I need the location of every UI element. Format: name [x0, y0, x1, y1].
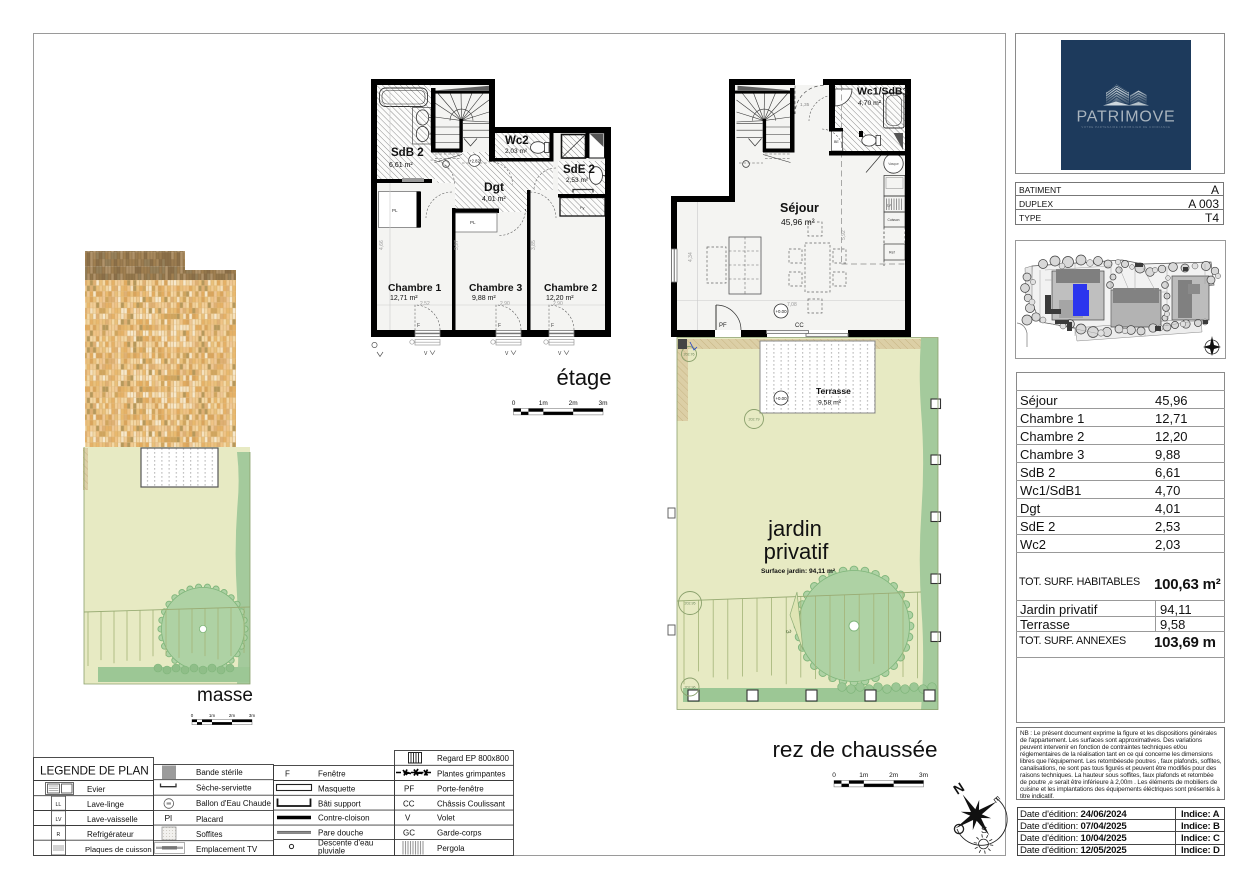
svg-text:Fy: Fy	[580, 205, 584, 210]
svg-text:Refrigérateur: Refrigérateur	[87, 830, 134, 839]
svg-text:2,53 m²: 2,53 m²	[566, 177, 589, 184]
svg-text:Pare douche: Pare douche	[318, 829, 364, 838]
svg-text:E: E	[991, 795, 1001, 805]
svg-text:Chambre 2: Chambre 2	[544, 283, 597, 294]
svg-text:2,90: 2,90	[500, 301, 510, 307]
svg-text:V: V	[505, 351, 509, 357]
svg-text:F: F	[417, 323, 420, 329]
svg-text:R: R	[57, 832, 61, 838]
svg-text:3m: 3m	[919, 772, 928, 779]
svg-text:CC: CC	[795, 323, 804, 329]
svg-text:Vasque: Vasque	[888, 162, 899, 166]
svg-text:Lave-vaisselle: Lave-vaisselle	[87, 815, 138, 824]
svg-text:12,71 m²: 12,71 m²	[390, 295, 418, 302]
svg-text:V: V	[424, 351, 428, 357]
svg-text:F: F	[498, 323, 501, 329]
svg-text:Emplacement TV: Emplacement TV	[196, 845, 258, 854]
svg-text:CC: CC	[403, 800, 415, 809]
svg-text:V: V	[405, 814, 411, 823]
svg-text:Bande stérile: Bande stérile	[196, 768, 243, 777]
svg-text:45,96 m²: 45,96 m²	[781, 217, 815, 227]
svg-text:2,52: 2,52	[420, 301, 430, 307]
svg-text:3,85: 3,85	[531, 240, 537, 250]
svg-text:2m: 2m	[229, 713, 236, 718]
svg-text:PL: PL	[470, 220, 476, 225]
svg-text:SdE 2: SdE 2	[563, 164, 595, 176]
svg-text:202.76: 202.76	[684, 353, 695, 357]
svg-text:Séjour: Séjour	[780, 201, 819, 215]
svg-text:Regard EP 800x800: Regard EP 800x800	[437, 754, 509, 763]
svg-text:LEGENDE DE PLAN: LEGENDE DE PLAN	[40, 764, 149, 778]
svg-text:2m: 2m	[889, 772, 898, 779]
svg-text:LV: LV	[56, 817, 62, 823]
svg-text:Ballon d'Eau Chaude: Ballon d'Eau Chaude	[196, 799, 271, 808]
svg-text:4,66: 4,66	[379, 240, 385, 250]
svg-text:Wc2: Wc2	[505, 135, 529, 147]
svg-text:202.96: 202.96	[685, 686, 696, 690]
svg-text:4,70 m²: 4,70 m²	[858, 100, 882, 107]
svg-text:0: 0	[832, 772, 836, 779]
svg-text:0: 0	[512, 400, 516, 407]
svg-text:Pergola: Pergola	[437, 844, 465, 853]
svg-text:masse: masse	[197, 685, 253, 706]
svg-text:3m: 3m	[249, 713, 256, 718]
svg-text:Pl: Pl	[165, 813, 173, 823]
svg-text:3m: 3m	[598, 400, 607, 407]
svg-text:Masquette: Masquette	[318, 785, 356, 794]
svg-text:2,03 m²: 2,03 m²	[505, 148, 528, 155]
svg-text:PATRIMOVE: PATRIMOVE	[1076, 109, 1175, 126]
svg-text:Evier: Evier	[87, 785, 106, 794]
svg-text:1m: 1m	[209, 713, 216, 718]
svg-text:202.79: 202.79	[749, 418, 760, 422]
svg-text:Chambre 3: Chambre 3	[469, 283, 522, 294]
svg-text:Fenêtre: Fenêtre	[318, 770, 346, 779]
svg-text:Lave-linge: Lave-linge	[87, 800, 124, 809]
svg-text:Bâti support: Bâti support	[318, 800, 361, 809]
svg-text:Dgt: Dgt	[484, 180, 504, 194]
svg-text:SdB 2: SdB 2	[391, 147, 424, 159]
svg-text:0: 0	[191, 713, 194, 718]
svg-text:6,61 m²: 6,61 m²	[389, 162, 413, 169]
svg-text:PL: PL	[392, 208, 398, 213]
svg-text:PF: PF	[719, 323, 727, 329]
svg-text:4,01 m²: 4,01 m²	[482, 196, 506, 203]
svg-text:PF: PF	[404, 785, 414, 794]
svg-text:Terrasse: Terrasse	[816, 386, 851, 396]
svg-text:jardin: jardin	[767, 516, 822, 541]
svg-text:Cuisson: Cuisson	[888, 218, 900, 222]
svg-text:+0.00: +0.00	[775, 309, 787, 314]
svg-text:1m: 1m	[539, 400, 548, 407]
svg-text:Porte-fenêtre: Porte-fenêtre	[437, 785, 484, 794]
svg-text:V: V	[558, 351, 562, 357]
svg-text:privatif: privatif	[764, 539, 830, 564]
svg-text:5,92: 5,92	[841, 230, 847, 240]
svg-text:3,97: 3,97	[454, 240, 460, 250]
svg-text:Contre-cloison: Contre-cloison	[318, 814, 370, 823]
svg-text:Placard: Placard	[196, 815, 223, 824]
svg-text:Plaques de cuisson: Plaques de cuisson	[85, 845, 152, 854]
svg-text:2,90: 2,90	[553, 301, 563, 307]
svg-text:Sèche-serviette: Sèche-serviette	[196, 784, 252, 793]
svg-text:Volet: Volet	[437, 814, 456, 823]
svg-text:Plantes grimpantes: Plantes grimpantes	[437, 770, 505, 779]
svg-text:LL: LL	[56, 802, 62, 808]
svg-text:pluviale: pluviale	[318, 847, 346, 856]
svg-text:Chambre 1: Chambre 1	[388, 283, 441, 294]
svg-text:4,34: 4,34	[688, 252, 694, 262]
svg-text:N: N	[951, 780, 967, 798]
svg-text:étage: étage	[556, 365, 611, 390]
svg-text:Châssis Coulissant: Châssis Coulissant	[437, 800, 506, 809]
svg-text:2m: 2m	[569, 400, 578, 407]
svg-text:Wc1/SdB1: Wc1/SdB1	[857, 86, 909, 98]
svg-text:202.95: 202.95	[685, 602, 696, 606]
svg-text:F: F	[285, 770, 290, 779]
svg-text:GC: GC	[403, 829, 415, 838]
svg-text:+0.00: +0.00	[775, 396, 787, 401]
svg-text:BE: BE	[834, 140, 839, 144]
svg-text:7,08: 7,08	[787, 302, 797, 308]
svg-text:Garde-corps: Garde-corps	[437, 829, 481, 838]
svg-text:1,35: 1,35	[800, 102, 810, 108]
svg-text:9,88 m²: 9,88 m²	[472, 295, 496, 302]
svg-text:rez de chaussée: rez de chaussée	[772, 737, 937, 762]
svg-text:+2.82: +2.82	[469, 158, 480, 163]
svg-text:Surface jardin: 94,11 m²: Surface jardin: 94,11 m²	[761, 568, 836, 575]
svg-text:1m: 1m	[859, 772, 868, 779]
svg-text:F: F	[551, 323, 554, 329]
svg-text:9,58 m²: 9,58 m²	[818, 400, 842, 407]
svg-text:Ref: Ref	[889, 251, 895, 255]
svg-text:VOTRE PARTENAIRE IMMOBILIER DE: VOTRE PARTENAIRE IMMOBILIER DE CONFIANCE	[1081, 125, 1170, 129]
svg-text:Soffites: Soffites	[196, 830, 223, 839]
